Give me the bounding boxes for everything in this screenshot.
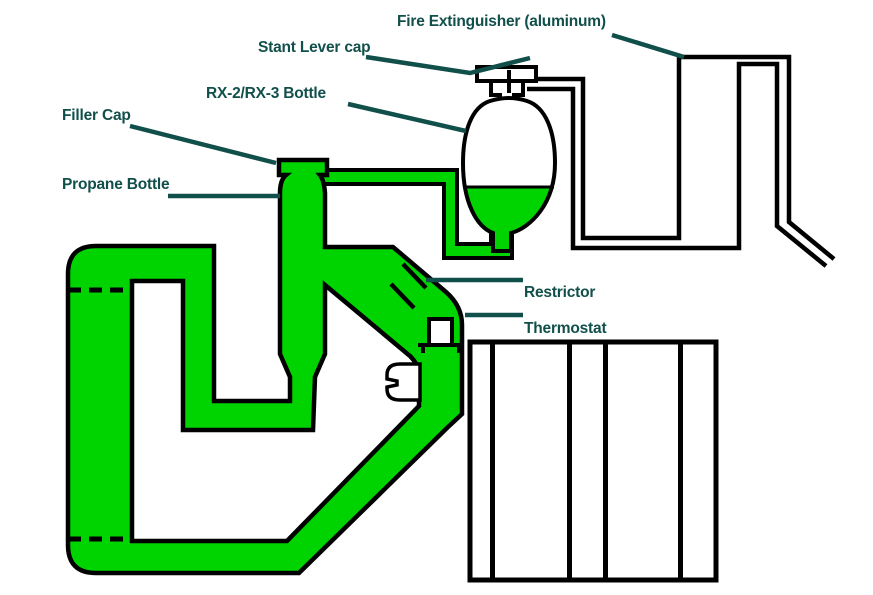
extinguisher-tube-inner-wall <box>527 64 826 266</box>
diagram-canvas: Fire Extinguisher (aluminum) Stant Lever… <box>0 0 873 595</box>
rx-bottle-leader-line <box>348 104 466 131</box>
propane-bottle-label: Propane Bottle <box>62 176 170 193</box>
filler-cap-leader-line <box>130 126 276 163</box>
restrictor-label: Restrictor <box>524 284 595 301</box>
propane-heater-diagram: Fire Extinguisher (aluminum) Stant Lever… <box>0 0 873 595</box>
fire-extinguisher-leader-line <box>612 35 684 57</box>
thermostat-element <box>429 319 452 345</box>
fire-extinguisher-label: Fire Extinguisher (aluminum) <box>397 13 606 30</box>
filler-cap-label: Filler Cap <box>62 107 131 124</box>
thermostat-label: Thermostat <box>524 320 606 337</box>
pipe-clamp-bracket <box>387 364 420 400</box>
rx-bottle-label: RX-2/RX-3 Bottle <box>206 85 327 102</box>
stant-lever-cap-label: Stant Lever cap <box>258 39 370 56</box>
